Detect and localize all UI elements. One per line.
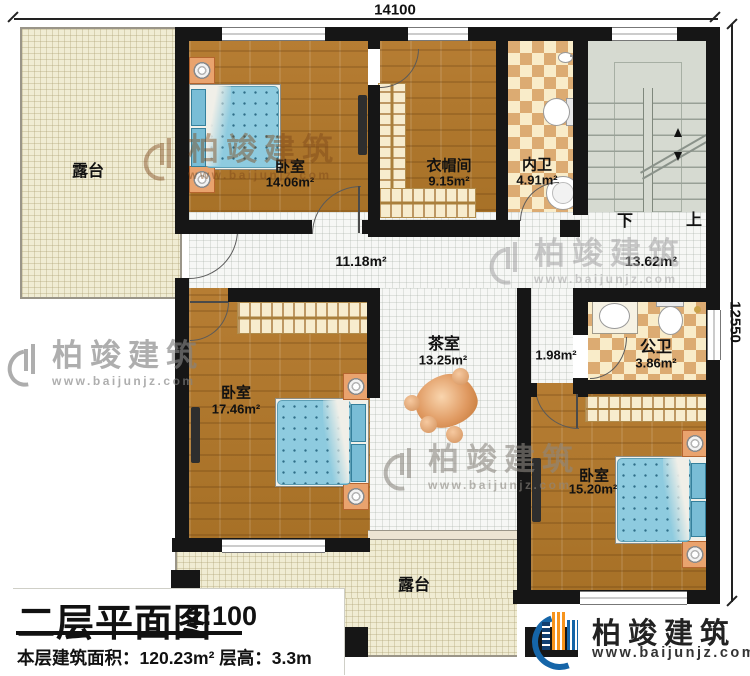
floor-info: 本层建筑面积：120.23m² 层高：3.3m	[17, 645, 312, 670]
pillow	[691, 463, 706, 499]
window	[580, 591, 687, 605]
dimension-tick	[7, 11, 18, 22]
stool	[446, 426, 463, 443]
room-area-corridor: 1.98m²	[535, 349, 576, 362]
room-label-bedroom-top: 卧室	[275, 160, 305, 175]
wall	[175, 41, 189, 228]
nightstand	[189, 166, 215, 193]
room-label-public-bath: 公卫	[640, 340, 672, 356]
wall	[368, 85, 380, 234]
brand-url: www.baijunjz.com	[592, 645, 750, 661]
room-label-terrace-top: 露台	[72, 164, 104, 180]
wall	[573, 288, 588, 335]
room-area-cloakroom: 9.15m²	[428, 175, 469, 188]
wall	[573, 27, 588, 215]
pillow	[191, 128, 206, 167]
room-label-bedroom-left: 卧室	[221, 386, 251, 401]
wardrobe	[237, 302, 370, 334]
room-label-tea-room: 茶室	[428, 337, 460, 353]
wardrobe	[585, 396, 708, 422]
wall	[367, 288, 380, 398]
stairs-down-label: 下	[617, 214, 633, 230]
stool	[420, 416, 437, 433]
wall	[588, 288, 706, 302]
sliding-door-threshold	[368, 530, 517, 540]
watermark-logo-icon	[10, 340, 44, 384]
stair-up-arrow-icon	[674, 128, 682, 137]
stairs-up-label: 上	[686, 213, 702, 229]
pillow	[691, 501, 706, 537]
room-area-bedroom-top: 14.06m²	[266, 176, 314, 189]
bed-sheet-fold	[323, 400, 349, 483]
window	[408, 27, 468, 41]
wall	[573, 380, 706, 394]
stair-down-arrow-icon	[674, 152, 682, 161]
wardrobe	[378, 83, 406, 193]
wall	[496, 41, 508, 222]
wall	[531, 383, 537, 397]
dimension-right-label: 12550	[728, 301, 743, 343]
room-area-bedroom-right: 15.20m²	[569, 483, 617, 496]
wall	[517, 288, 531, 604]
window	[707, 310, 721, 360]
stool	[452, 368, 469, 385]
toilet	[658, 306, 683, 335]
drawing-scale: 1:100	[188, 601, 257, 632]
wall	[560, 220, 580, 237]
room-area-inner-bath: 4.91m²	[516, 174, 557, 187]
room-area-bedroom-left: 17.46m²	[212, 403, 260, 416]
stair-rail	[643, 88, 653, 212]
room-area-tea-room: 13.25m²	[419, 354, 467, 367]
toilet	[543, 98, 570, 126]
tv	[191, 407, 200, 463]
wall	[368, 220, 520, 237]
dimension-line-top	[14, 18, 718, 20]
room-label-cloakroom: 衣帽间	[426, 159, 471, 174]
door-leaf	[190, 301, 228, 303]
room-area-public-bath: 3.86m²	[635, 357, 676, 370]
nightstand	[343, 483, 369, 510]
title-underline	[16, 631, 242, 635]
tv	[358, 95, 367, 155]
door-leaf	[358, 186, 360, 233]
drawing-title: 二层平面图	[17, 592, 212, 647]
window	[222, 27, 325, 41]
wall	[368, 41, 380, 49]
nightstand	[682, 541, 708, 568]
bed-sheet-fold	[663, 458, 689, 540]
window	[612, 27, 677, 41]
nightstand	[189, 57, 215, 84]
floor-plan-sheet: 14100 12550	[0, 0, 750, 676]
pillow	[351, 444, 366, 482]
wall	[175, 220, 312, 234]
tv	[532, 458, 541, 522]
room-area-stair-hall: 13.62m²	[625, 254, 677, 268]
dimension-tick	[709, 11, 720, 22]
corridor-floor	[531, 288, 573, 388]
wall	[228, 288, 370, 302]
dimension-top-label: 14100	[374, 3, 416, 18]
wardrobe	[378, 188, 476, 218]
nightstand	[343, 373, 369, 400]
room-label-inner-bath: 内卫	[522, 158, 552, 173]
shower-drain	[558, 52, 573, 63]
room-area-hallway: 11.18m²	[335, 254, 386, 268]
pillow	[351, 404, 366, 442]
wall	[578, 383, 588, 397]
pillow	[191, 89, 206, 126]
brand-logo-icon	[530, 606, 584, 664]
nightstand	[682, 430, 708, 457]
room-label-terrace-bottom: 露台	[398, 578, 430, 594]
window	[222, 539, 325, 553]
door-handle	[694, 306, 701, 313]
sink-basin	[599, 303, 630, 329]
bed-sheet-fold	[205, 86, 231, 166]
wall	[175, 278, 189, 552]
stool	[404, 395, 420, 411]
